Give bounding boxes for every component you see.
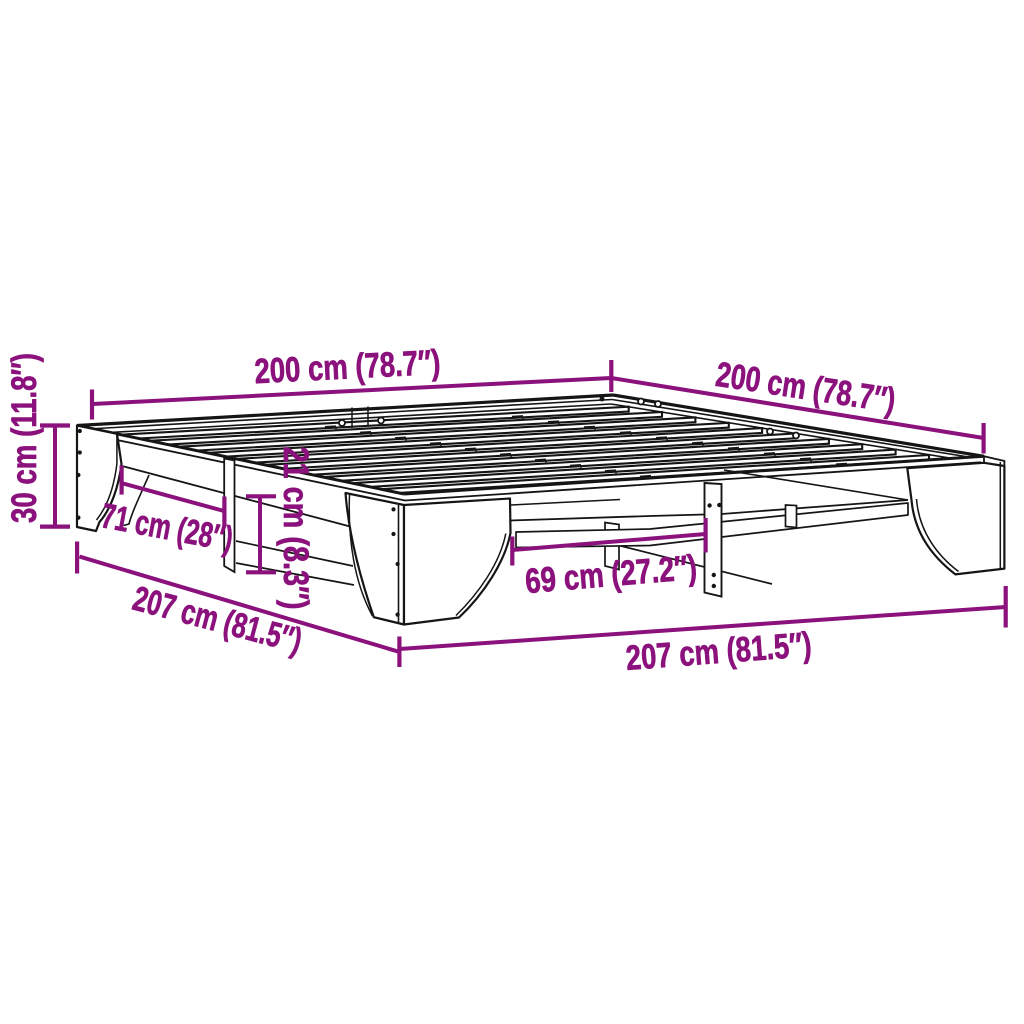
svg-text:21 cm (8.3″): 21 cm (8.3″) bbox=[276, 447, 315, 610]
svg-text:30 cm (11.8″): 30 cm (11.8″) bbox=[5, 353, 44, 523]
